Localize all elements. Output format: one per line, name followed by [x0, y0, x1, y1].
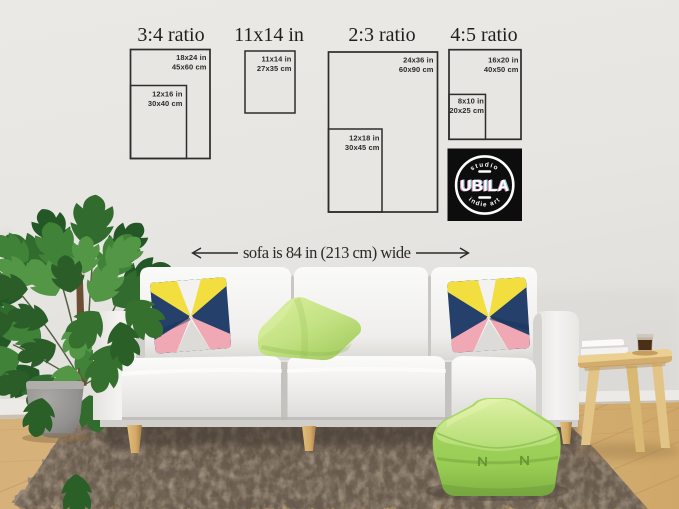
svg-text:60x90 cm: 60x90 cm — [399, 65, 434, 74]
svg-text:UBILA: UBILA — [460, 178, 509, 195]
svg-text:27x35 cm: 27x35 cm — [257, 64, 292, 73]
svg-text:8x10 in: 8x10 in — [458, 97, 484, 106]
svg-text:30x45 cm: 30x45 cm — [345, 143, 380, 152]
svg-text:4:5 ratio: 4:5 ratio — [450, 24, 517, 46]
svg-text:18x24 in: 18x24 in — [176, 53, 207, 62]
svg-text:12x18 in: 12x18 in — [349, 134, 380, 143]
svg-text:3:4 ratio: 3:4 ratio — [137, 24, 204, 46]
svg-text:45x60 cm: 45x60 cm — [172, 63, 207, 72]
svg-text:11x14 in: 11x14 in — [262, 55, 292, 64]
svg-text:sofa is 84 in (213 cm) wide: sofa is 84 in (213 cm) wide — [243, 243, 411, 262]
svg-text:12x16 in: 12x16 in — [152, 90, 183, 99]
svg-text:30x40 cm: 30x40 cm — [148, 99, 183, 108]
svg-text:24x36 in: 24x36 in — [403, 56, 434, 65]
svg-text:40x50 cm: 40x50 cm — [484, 65, 519, 74]
svg-text:11x14 in: 11x14 in — [234, 24, 304, 46]
svg-text:20x25 cm: 20x25 cm — [449, 106, 484, 115]
svg-text:16x20 in: 16x20 in — [488, 56, 519, 65]
svg-text:2:3 ratio: 2:3 ratio — [348, 24, 415, 46]
